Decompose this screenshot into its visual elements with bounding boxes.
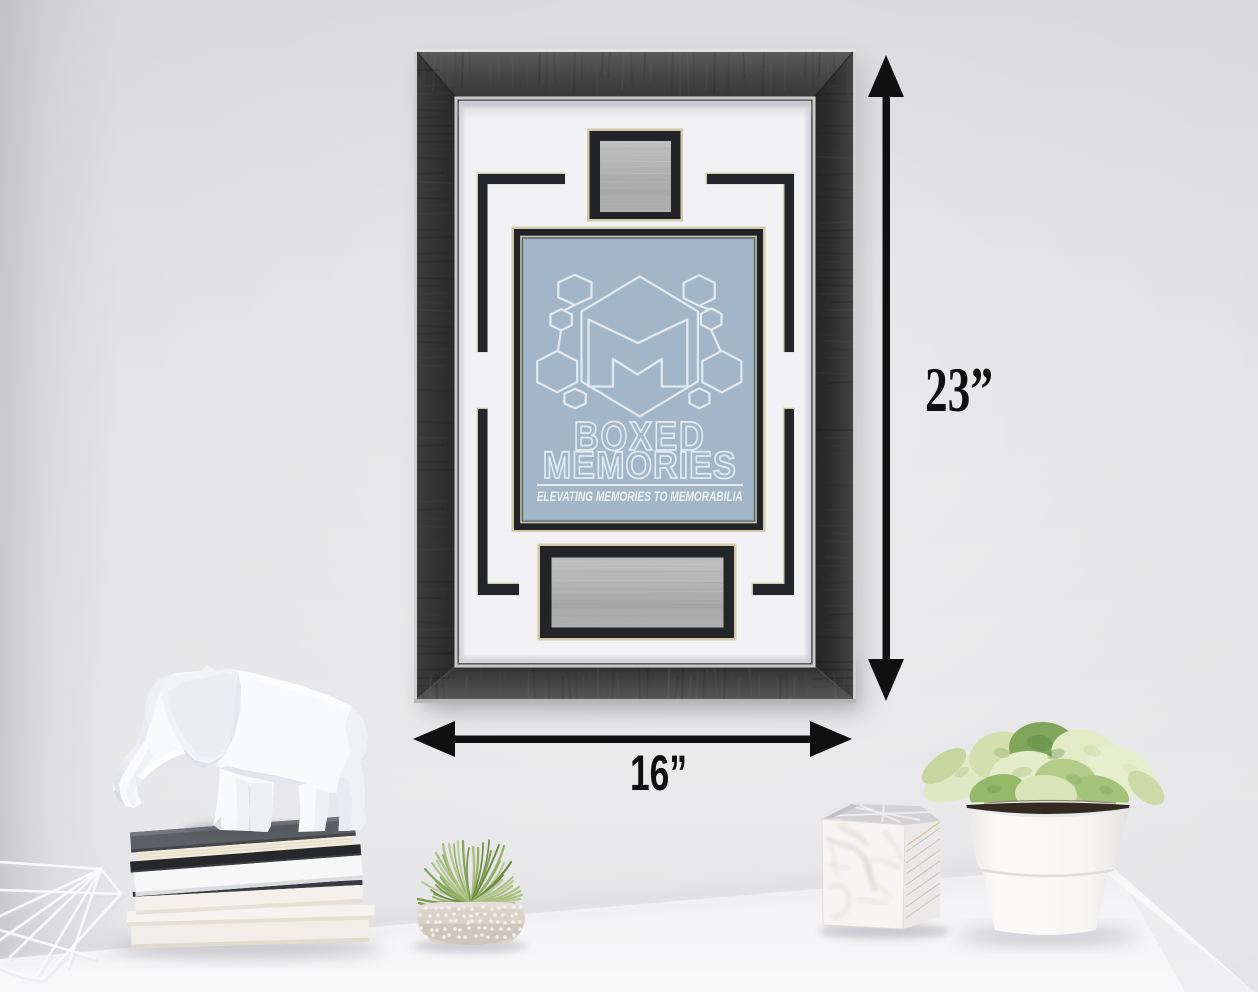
- svg-text:MEMORIES: MEMORIES: [543, 445, 737, 487]
- svg-text:16”: 16”: [630, 745, 687, 801]
- svg-text:ELEVATING MEMORIES TO MEMORABI: ELEVATING MEMORIES TO MEMORABILIA: [537, 489, 743, 504]
- svg-text:23”: 23”: [925, 355, 993, 425]
